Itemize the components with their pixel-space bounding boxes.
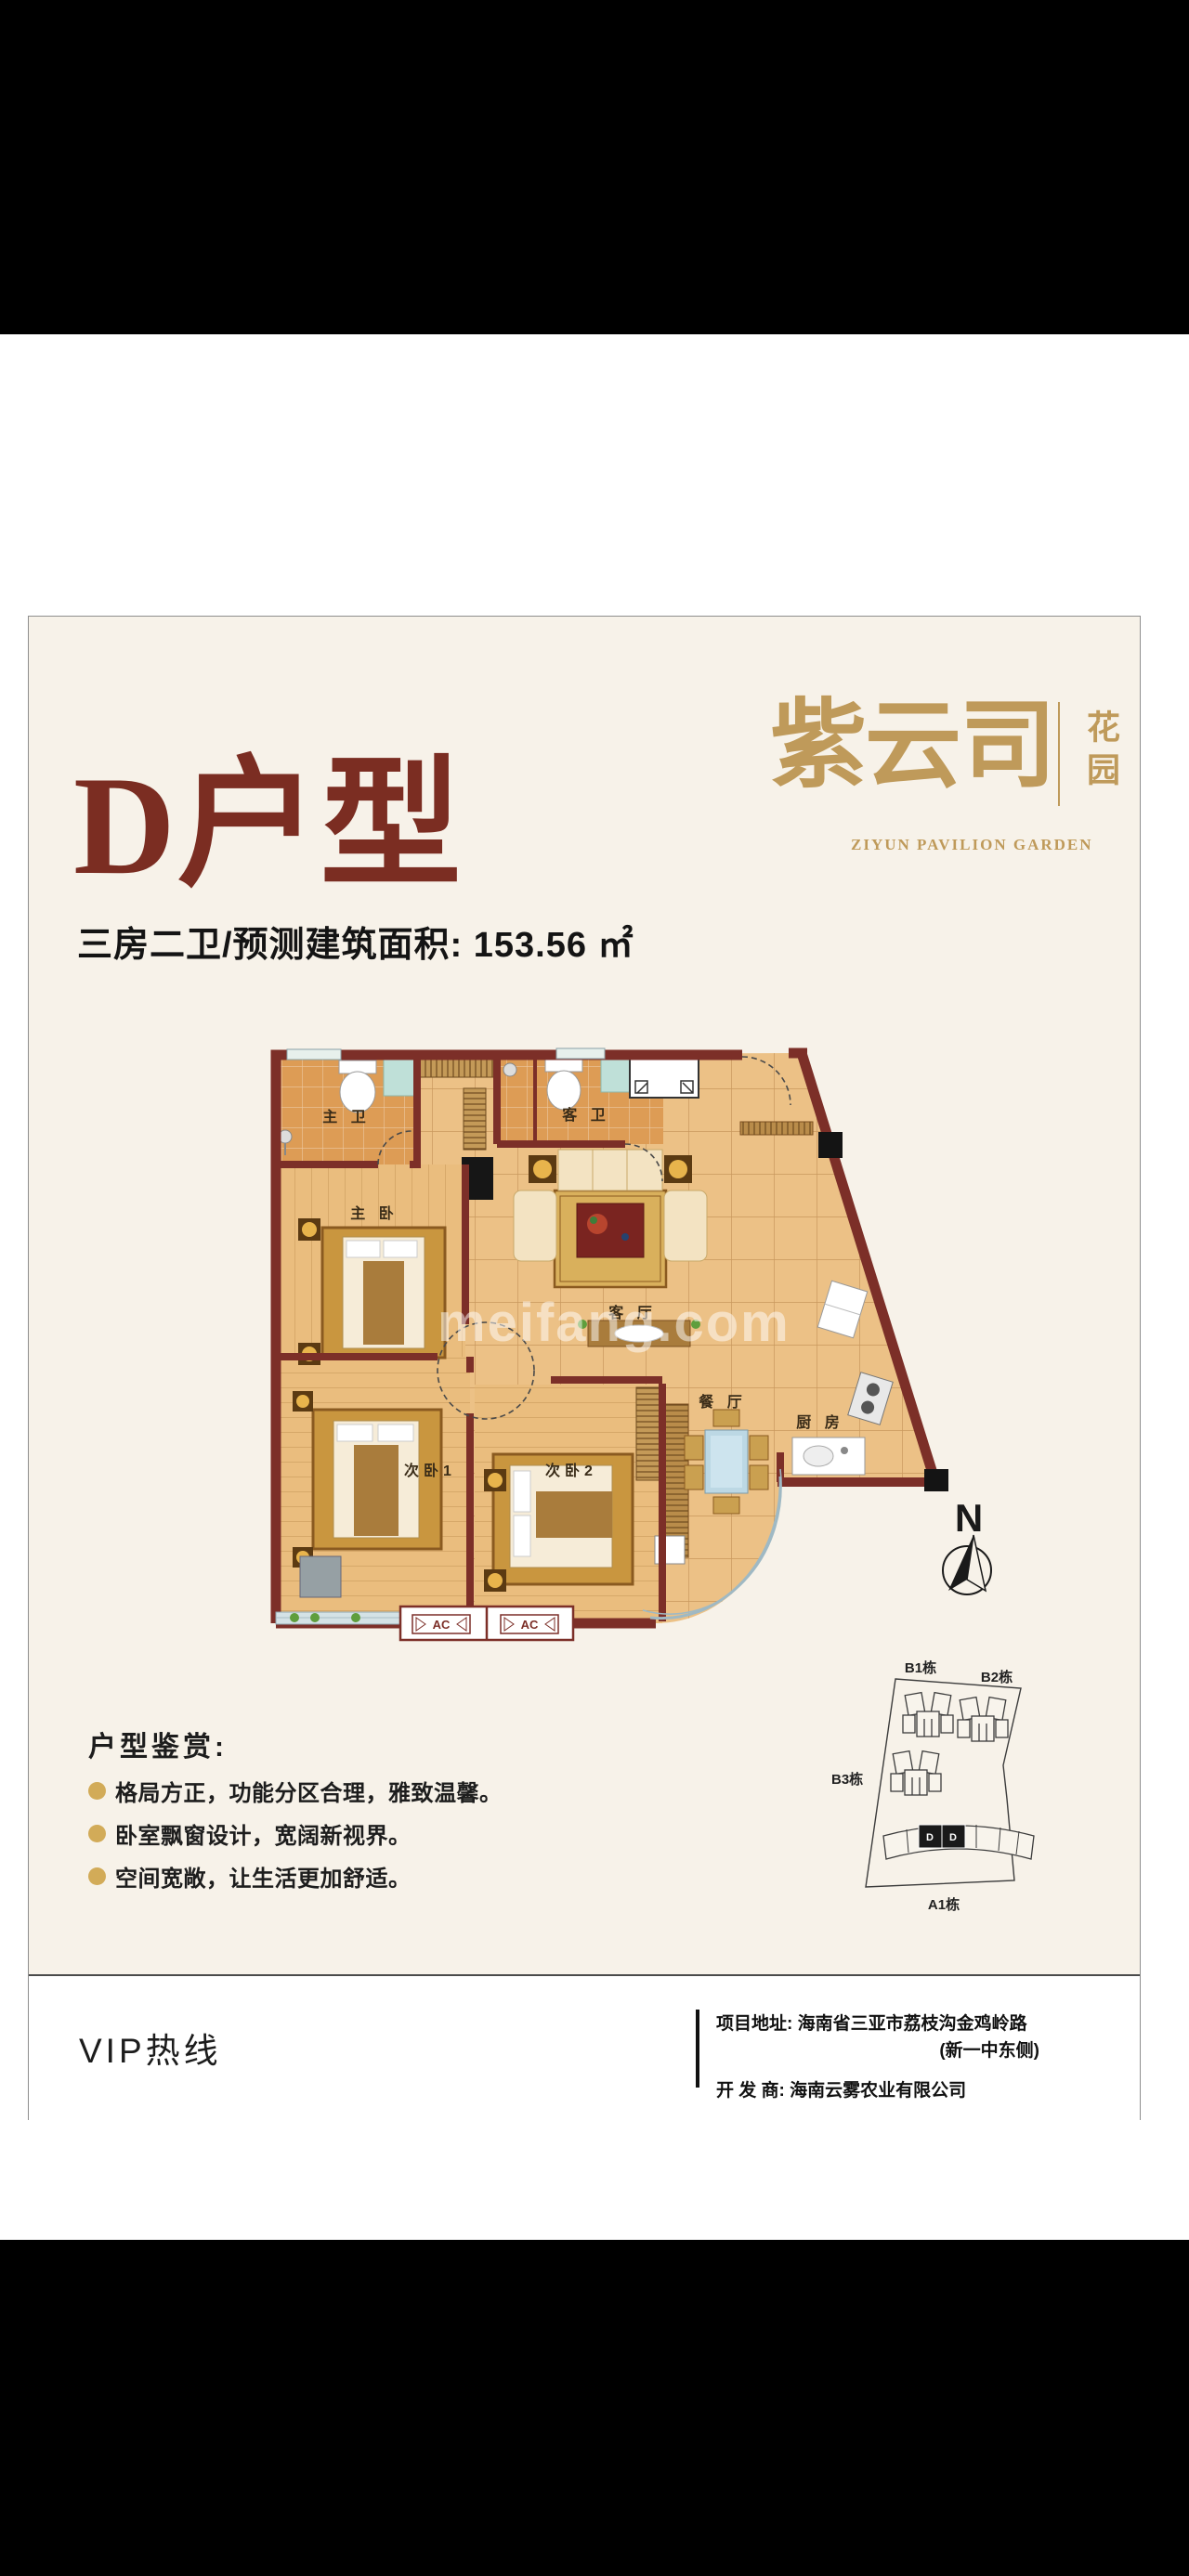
site-label-a1: A1栋 bbox=[928, 1896, 960, 1913]
logo-divider bbox=[1058, 702, 1060, 806]
arc-building-a1: D D bbox=[883, 1825, 1034, 1859]
site-plan: D D B1栋 B2栋 B3栋 A1栋 bbox=[818, 1654, 1060, 1923]
site-label-b1: B1栋 bbox=[905, 1659, 936, 1676]
project-address-line1: 项目地址: 海南省三亚市荔枝沟金鸡岭路 bbox=[716, 2010, 1039, 2035]
floor-plan: AC AC 主 卫 客 卫 主 卧 次卧1 次卧2 客 厅 餐 厅 厨 房 me… bbox=[261, 1046, 948, 1645]
page-title: D户型 bbox=[73, 748, 464, 904]
site-label-b2: B2栋 bbox=[981, 1669, 1013, 1685]
room-label-master-bedroom: 主 卧 bbox=[350, 1204, 398, 1222]
feature-text: 卧室飘窗设计，宽阔新视界。 bbox=[115, 1817, 412, 1850]
feature-text: 空间宽敞，让生活更加舒适。 bbox=[115, 1860, 412, 1893]
site-label-b3: B3栋 bbox=[831, 1771, 863, 1788]
ac-platform: AC AC bbox=[400, 1607, 573, 1640]
bullet-dot-icon bbox=[88, 1782, 106, 1800]
room-label-bedroom1: 次卧1 bbox=[404, 1462, 456, 1479]
feature-text: 格局方正，功能分区合理，雅致温馨。 bbox=[115, 1775, 503, 1807]
developer-line: 开 发 商: 海南云雾农业有限公司 bbox=[716, 2076, 1039, 2101]
feature-item: 卧室飘窗设计，宽阔新视界。 bbox=[88, 1817, 608, 1850]
unit-d-1: D bbox=[926, 1832, 934, 1843]
ac-label-2: AC bbox=[521, 1618, 539, 1632]
room-label-guest-bath: 客 卫 bbox=[562, 1106, 609, 1124]
flyer-page: 紫云司 花园 ZIYUN PAVILION GARDEN D户型 三房二卫/预测… bbox=[0, 0, 1189, 2576]
feature-item: 空间宽敞，让生活更加舒适。 bbox=[88, 1860, 608, 1893]
room-label-bedroom2: 次卧2 bbox=[545, 1462, 597, 1479]
bottom-black-bar bbox=[0, 2240, 1189, 2576]
card-footer: VIP热线 项目地址: 海南省三亚市荔枝沟金鸡岭路 (新一中东侧) 开 发 商:… bbox=[29, 1974, 1140, 2120]
layout-card: 紫云司 花园 ZIYUN PAVILION GARDEN D户型 三房二卫/预测… bbox=[28, 616, 1141, 2120]
north-compass: N bbox=[883, 1477, 1004, 1598]
feature-item: 格局方正，功能分区合理，雅致温馨。 bbox=[88, 1775, 608, 1807]
bullet-dot-icon bbox=[88, 1867, 106, 1885]
features-heading: 户型鉴赏: bbox=[88, 1724, 608, 1764]
features-section: 户型鉴赏: 格局方正，功能分区合理，雅致温馨。 卧室飘窗设计，宽阔新视界。 空间… bbox=[88, 1724, 608, 1893]
top-black-bar bbox=[0, 0, 1189, 334]
watermark: meifang.com bbox=[438, 1293, 790, 1353]
logo-suffix: 花园 bbox=[1077, 709, 1125, 795]
project-address-line2: (新一中东侧) bbox=[716, 2036, 1039, 2062]
room-label-master-bath: 主 卫 bbox=[322, 1108, 370, 1125]
north-label: N bbox=[955, 1496, 983, 1540]
footer-divider-bar bbox=[696, 2010, 699, 2088]
unit-d-2: D bbox=[949, 1832, 957, 1843]
logo-english-caption: ZIYUN PAVILION GARDEN bbox=[851, 836, 1060, 854]
ac-label-1: AC bbox=[433, 1618, 451, 1632]
bullet-dot-icon bbox=[88, 1825, 106, 1842]
brand-logo: 紫云司 bbox=[770, 689, 1049, 805]
room-label-dining: 餐 厅 bbox=[698, 1393, 746, 1411]
unit-subtitle: 三房二卫/预测建筑面积: 153.56 ㎡ bbox=[77, 916, 634, 967]
entry-cabinet bbox=[740, 1122, 813, 1135]
room-label-kitchen: 厨 房 bbox=[796, 1413, 843, 1431]
vip-hotline-label: VIP热线 bbox=[79, 2023, 222, 2073]
project-info: 项目地址: 海南省三亚市荔枝沟金鸡岭路 (新一中东侧) 开 发 商: 海南云雾农… bbox=[716, 2010, 1039, 2101]
